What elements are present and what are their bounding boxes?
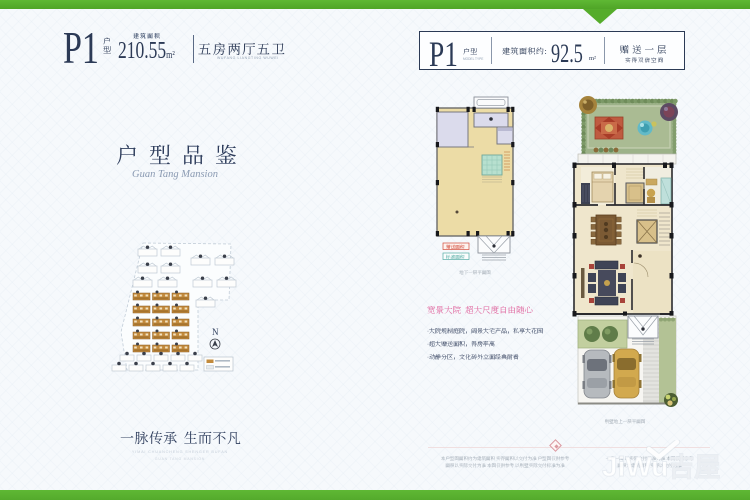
- svg-text:标准面积: 标准面积: [446, 253, 465, 260]
- svg-text:别墅地上一层平面图: 别墅地上一层平面图: [604, 418, 646, 425]
- svg-text:N: N: [212, 327, 219, 337]
- svg-text:地下一层平面图: 地下一层平面图: [458, 270, 491, 276]
- svg-text:赠送面积: 赠送面积: [446, 243, 465, 250]
